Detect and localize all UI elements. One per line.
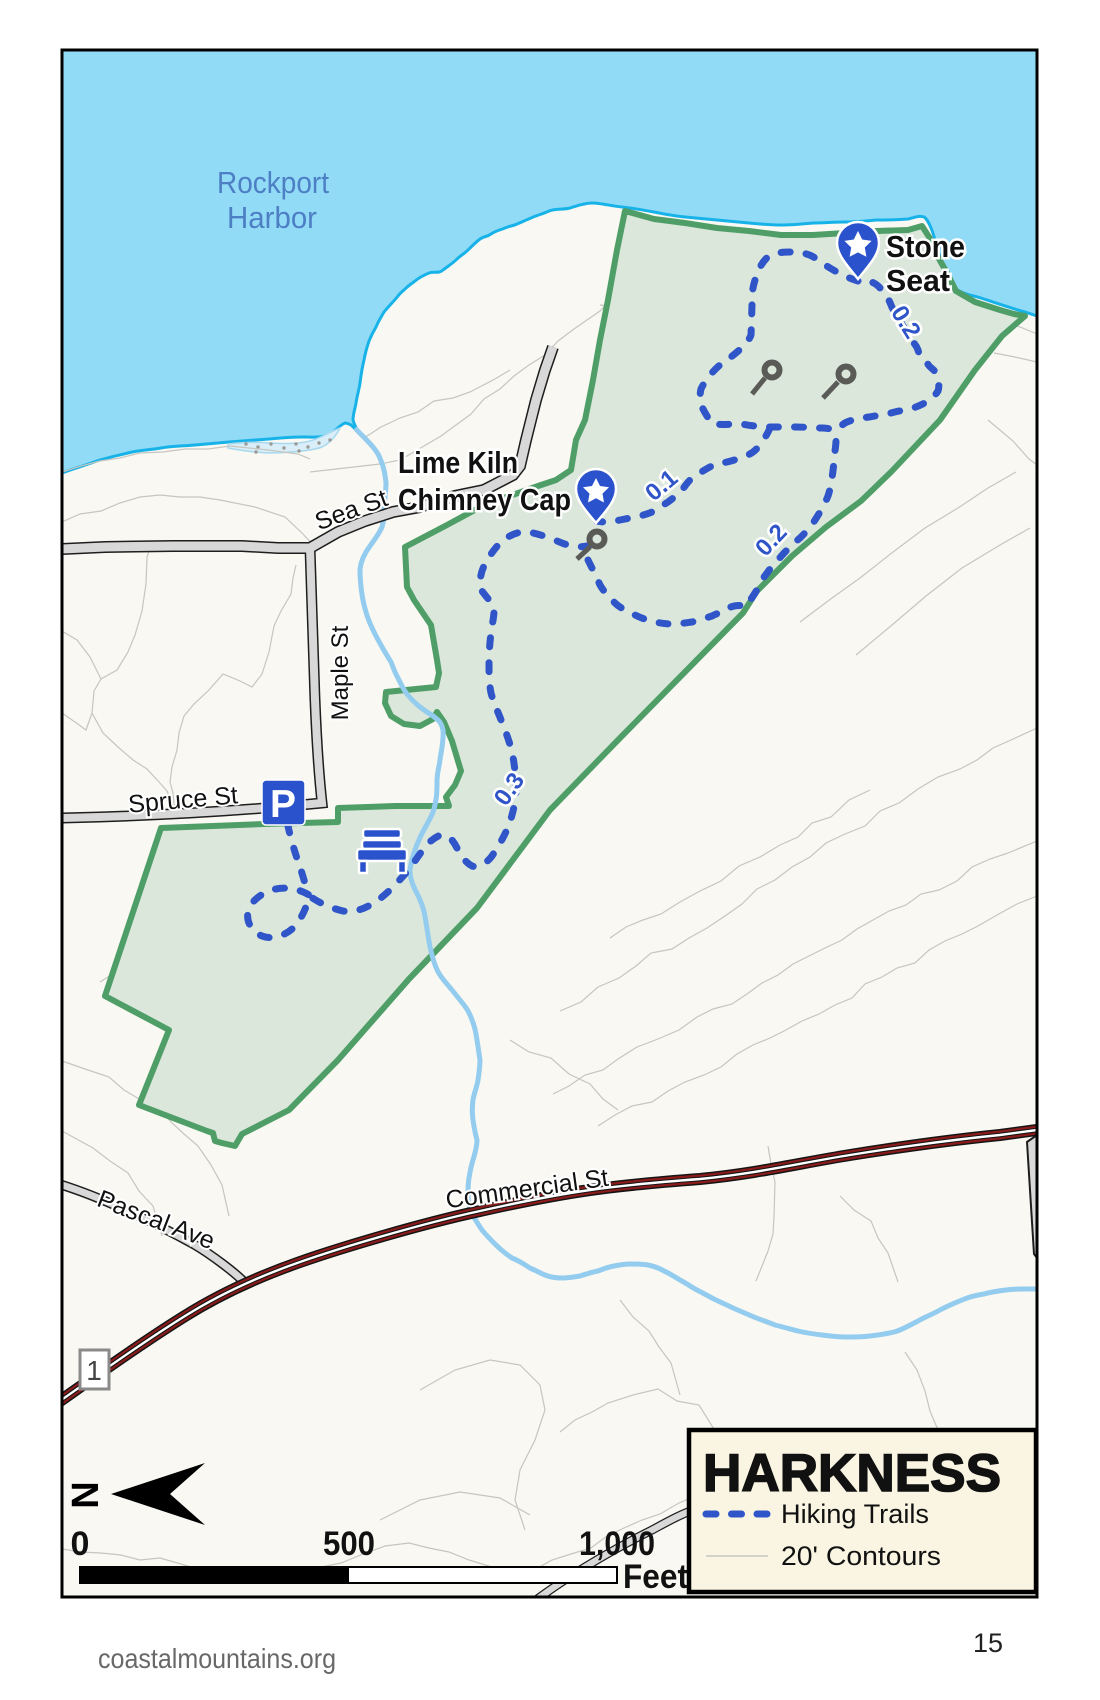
svg-text:Maple St: Maple St	[327, 625, 354, 720]
svg-text:Hiking Trails: Hiking Trails	[781, 1499, 929, 1529]
svg-text:Harbor: Harbor	[227, 200, 317, 235]
svg-text:N: N	[65, 1481, 107, 1508]
svg-text:Feet: Feet	[623, 1558, 688, 1596]
svg-text:Chimney Cap: Chimney Cap	[398, 482, 571, 517]
svg-text:15: 15	[973, 1628, 1003, 1658]
svg-text:Rockport: Rockport	[217, 165, 329, 200]
svg-text:HARKNESS: HARKNESS	[703, 1444, 1001, 1503]
svg-text:500: 500	[323, 1525, 375, 1563]
svg-text:coastalmountains.org: coastalmountains.org	[98, 1643, 336, 1674]
svg-text:Lime Kiln: Lime Kiln	[398, 445, 518, 480]
svg-text:Stone: Stone	[886, 229, 965, 264]
svg-text:P: P	[270, 783, 296, 826]
svg-text:20' Contours: 20' Contours	[781, 1541, 941, 1571]
svg-text:0: 0	[71, 1525, 90, 1563]
svg-text:1: 1	[86, 1355, 102, 1386]
svg-text:Seat: Seat	[886, 263, 950, 298]
